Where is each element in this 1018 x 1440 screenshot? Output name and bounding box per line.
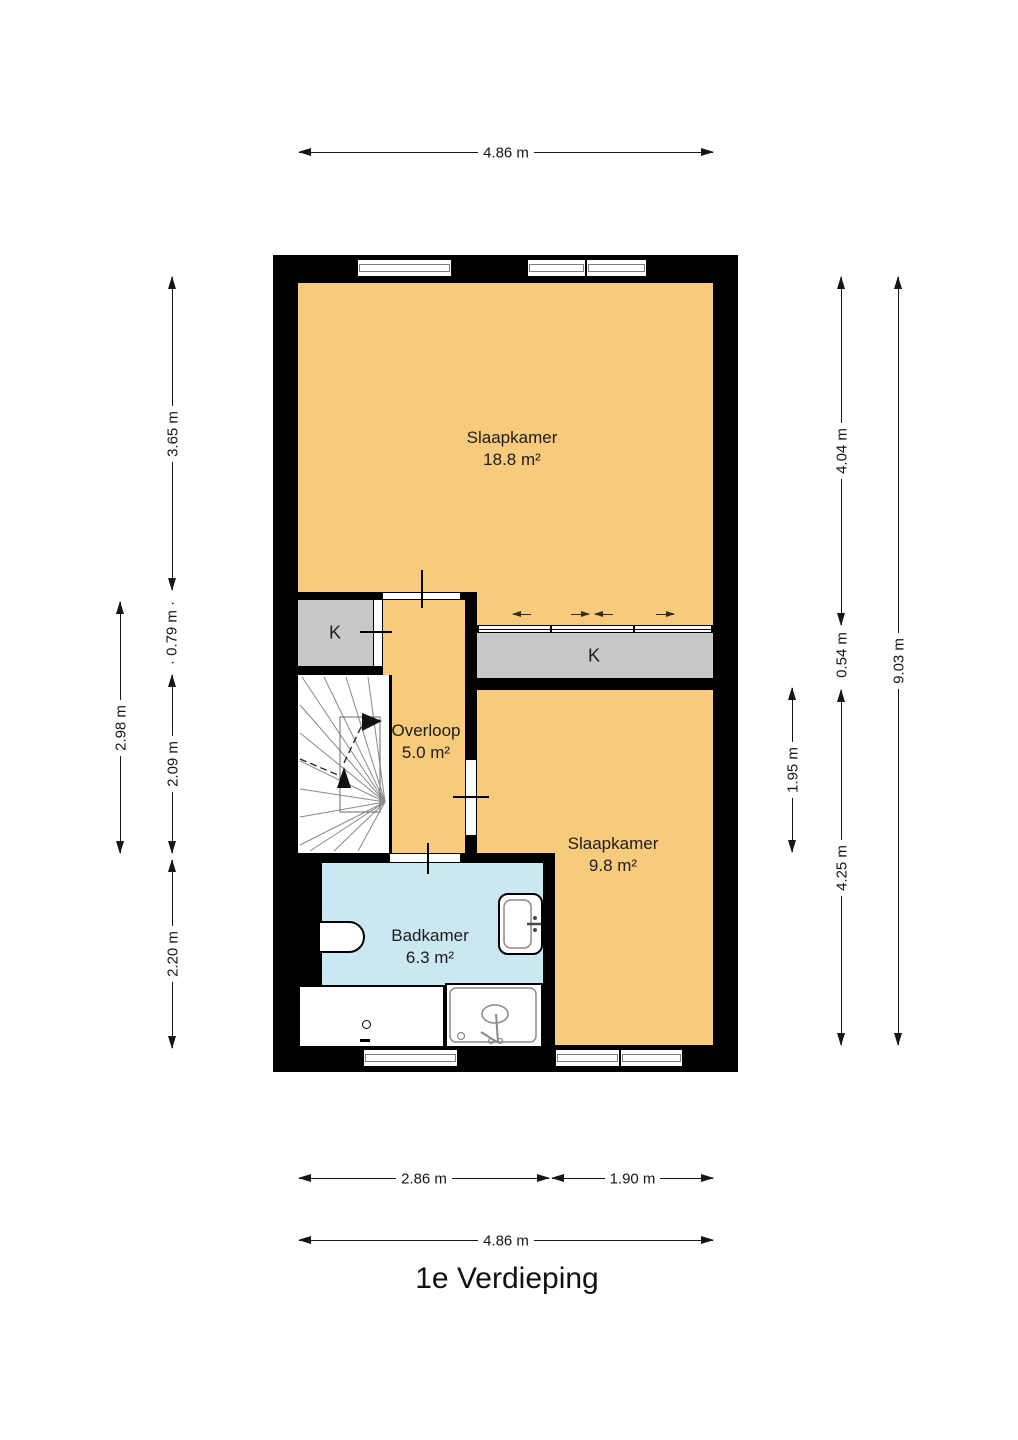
wall-closet-right-bottom [477,678,713,690]
stairs-treads-icon [298,675,389,853]
doorway-landing-bedroom2 [465,760,477,835]
slide-arrow-right-icon [571,614,589,615]
window-bottom-3 [620,1049,683,1067]
dim-bottom-right: 1.90 m [552,1178,713,1179]
slide-arrow-left-icon [513,614,531,615]
dim-bottom-left: 2.86 m [299,1178,549,1179]
arrowhead [837,689,845,702]
dim-bottom-total: 4.86 m [299,1240,713,1241]
wall-top [273,255,738,283]
door-tick [427,843,429,874]
window-glass [588,264,645,272]
toilet-icon [318,921,365,953]
bathtub-icon [298,985,445,1048]
door-tick [360,631,392,633]
window-glass [622,1054,681,1062]
arrowhead [298,1236,311,1244]
room-name: Badkamer [391,925,468,947]
arrowhead [168,841,176,854]
arrowhead [837,1033,845,1046]
room-area: 18.8 m² [467,449,558,471]
dim-label: 2.20 m [164,926,183,982]
arrowhead [894,276,902,289]
window-top-3 [586,259,647,277]
window-bottom-1 [363,1049,458,1067]
room-name: Slaapkamer [568,833,659,855]
wall-closet-left-bottom [298,666,383,675]
dim-label: 4.25 m [833,840,852,896]
wall-right [713,255,738,1072]
sink-icon [498,893,543,955]
dim-label: 4.86 m [478,144,534,163]
window-top-1 [357,259,452,277]
arrowhead [701,148,714,156]
slide-arrow-left-icon [595,614,613,615]
dim-label: 4.86 m [478,1232,534,1251]
room-area: 9.8 m² [568,855,659,877]
shower-detail-icon [447,985,541,1046]
room-label-bedroom1: Slaapkamer 18.8 m² [467,427,558,471]
slide-arrow-right-icon [656,614,674,615]
staircase [298,675,389,853]
room-label-bathroom: Badkamer 6.3 m² [391,925,468,969]
window-glass [529,264,584,272]
arrowhead [837,613,845,626]
wall-under-stairs [298,853,390,863]
window-top-2 [527,259,586,277]
dim-label: 1.90 m [605,1170,661,1189]
doorway-landing-bathroom [390,853,460,863]
dim-left-stairs: 2.09 m [172,675,173,853]
wall-bedroom1-closet [298,592,383,600]
arrowhead [168,674,176,687]
room-name: Slaapkamer [467,427,558,449]
arrowhead [537,1174,550,1182]
dim-right-total: 9.03 m [898,277,899,1045]
dim-left-closet: · 0.79 m · [163,598,182,668]
arrowhead [837,276,845,289]
wall-bathroom-top [460,853,555,863]
dim-left-middle: 2.98 m [120,602,121,853]
window-bottom-2 [555,1049,620,1067]
bathtub-drain-icon [362,1020,371,1029]
wall-landing-right-upper [465,600,477,760]
dim-right-closet: 0.54 m [833,629,852,681]
track-tick [550,625,552,633]
dim-label: 2.98 m [112,700,131,756]
arrowhead [701,1236,714,1244]
arrowhead [701,1174,714,1182]
dim-right-lower: 4.25 m [841,690,842,1045]
arrowhead [168,276,176,289]
track-mid-line [479,629,711,630]
arrowhead [788,687,796,700]
wall-pillar [460,592,477,600]
dim-left-upper: 3.65 m [172,277,173,590]
arrowhead [116,601,124,614]
room-area: 5.0 m² [392,742,461,764]
page-title: 1e Verdieping [415,1262,599,1296]
dim-right-door: 1.95 m [792,688,793,852]
closet-right-label: K [588,646,600,667]
arrowhead [894,1033,902,1046]
dim-label: 3.65 m [164,406,183,462]
wall-left [273,255,298,1072]
dim-left-bathroom: 2.20 m [172,860,173,1048]
dim-label: 2.09 m [164,736,183,792]
arrowhead [116,841,124,854]
dim-right-upper: 4.04 m [841,277,842,625]
arrowhead [168,578,176,591]
dim-top-total: 4.86 m [299,152,713,153]
bathtub-tap-icon [360,1039,370,1042]
arrowhead [298,1174,311,1182]
window-glass [365,1054,456,1062]
floorplan-canvas: Slaapkamer 18.8 m² Overloop 5.0 m² Slaap… [0,0,1018,1440]
arrowhead [168,1036,176,1049]
window-glass [359,264,450,272]
room-name: Overloop [392,720,461,742]
room-label-bedroom2: Slaapkamer 9.8 m² [568,833,659,877]
dim-label: 1.95 m [784,742,803,798]
wall-bathroom-bedroom2 [543,853,555,1048]
slidedoor-closet-left [373,600,383,666]
room-area: 6.3 m² [391,947,468,969]
arrowhead [298,148,311,156]
dim-label: 4.04 m [833,423,852,479]
track-tick [633,625,635,633]
room-label-landing: Overloop 5.0 m² [392,720,461,764]
door-tick [421,570,423,608]
shower-icon [445,983,543,1048]
closet-left-label: K [329,623,341,644]
arrowhead [168,859,176,872]
slidedoor-closet-right [477,625,713,633]
arrowhead [551,1174,564,1182]
dim-label: 2.86 m [396,1170,452,1189]
arrowhead [788,840,796,853]
window-glass [557,1054,618,1062]
door-tick [453,796,489,798]
dim-label: 9.03 m [890,633,909,689]
